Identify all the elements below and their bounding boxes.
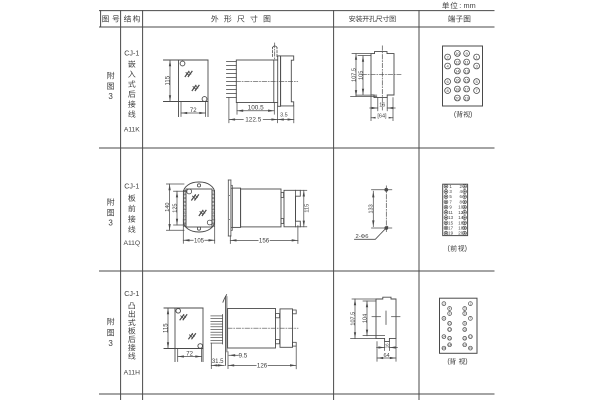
svg-text:115: 115 [163, 323, 169, 333]
svg-text:15: 15 [463, 336, 467, 340]
svg-text:107.5: 107.5 [350, 312, 356, 326]
svg-text:10: 10 [448, 321, 452, 325]
svg-text:133: 133 [369, 204, 375, 213]
svg-text:CJ-1: CJ-1 [124, 49, 139, 58]
svg-text:10: 10 [455, 51, 460, 56]
svg-text:17: 17 [463, 343, 467, 347]
svg-text:14: 14 [455, 68, 460, 73]
svg-text:115: 115 [304, 204, 310, 213]
svg-text:100.5: 100.5 [248, 105, 264, 112]
svg-text:115: 115 [165, 75, 171, 85]
svg-text:105: 105 [194, 238, 205, 244]
svg-text:13: 13 [464, 68, 469, 73]
svg-text:): ) [470, 112, 472, 119]
svg-text:72: 72 [186, 351, 193, 357]
svg-text:CJ-1: CJ-1 [124, 289, 139, 298]
svg-text:mm: mm [464, 1, 476, 10]
svg-text:CJ-1: CJ-1 [124, 181, 139, 190]
svg-text:18: 18 [455, 86, 460, 91]
svg-text:20: 20 [455, 95, 460, 100]
svg-text:2-Φ6: 2-Φ6 [355, 234, 368, 240]
svg-text:16: 16 [448, 336, 452, 340]
svg-text:3: 3 [108, 92, 113, 101]
svg-text::: : [459, 1, 461, 10]
svg-text:3: 3 [108, 219, 113, 228]
svg-text:16: 16 [455, 77, 460, 82]
svg-text:156: 156 [259, 238, 270, 245]
svg-text:9.5: 9.5 [238, 352, 247, 359]
svg-text:19: 19 [464, 95, 469, 100]
svg-text:125: 125 [172, 204, 178, 213]
svg-text:20: 20 [458, 231, 463, 236]
svg-text:3: 3 [108, 339, 113, 348]
svg-text:12: 12 [455, 59, 460, 64]
svg-text:126: 126 [257, 363, 268, 370]
svg-text:3.5: 3.5 [280, 112, 288, 118]
svg-text:11: 11 [463, 327, 466, 331]
svg-text:18: 18 [448, 343, 452, 347]
svg-text:12: 12 [448, 327, 452, 331]
svg-text:31.5: 31.5 [212, 359, 224, 365]
svg-text:13: 13 [469, 335, 473, 339]
svg-text:19: 19 [448, 231, 453, 236]
svg-text:140: 140 [165, 203, 171, 212]
svg-text:14: 14 [442, 335, 446, 339]
svg-text:[64]: [64] [377, 113, 387, 119]
svg-text:107.5: 107.5 [351, 68, 357, 82]
svg-text:72: 72 [190, 108, 197, 114]
svg-text:64: 64 [383, 353, 389, 359]
svg-text:): ) [465, 246, 467, 253]
svg-text:20: 20 [442, 346, 446, 350]
svg-text:A11Q: A11Q [123, 240, 140, 247]
svg-text:104: 104 [362, 314, 368, 323]
svg-text:16: 16 [385, 343, 390, 348]
svg-text:): ) [465, 359, 467, 366]
svg-text:15: 15 [464, 77, 469, 82]
svg-text:A11K: A11K [124, 126, 140, 133]
svg-text:122.5: 122.5 [245, 117, 261, 124]
svg-text:16: 16 [379, 102, 385, 108]
svg-text:19: 19 [469, 346, 473, 350]
svg-text:17: 17 [464, 86, 469, 91]
svg-text:105: 105 [358, 71, 364, 80]
svg-text:A11H: A11H [124, 370, 140, 377]
